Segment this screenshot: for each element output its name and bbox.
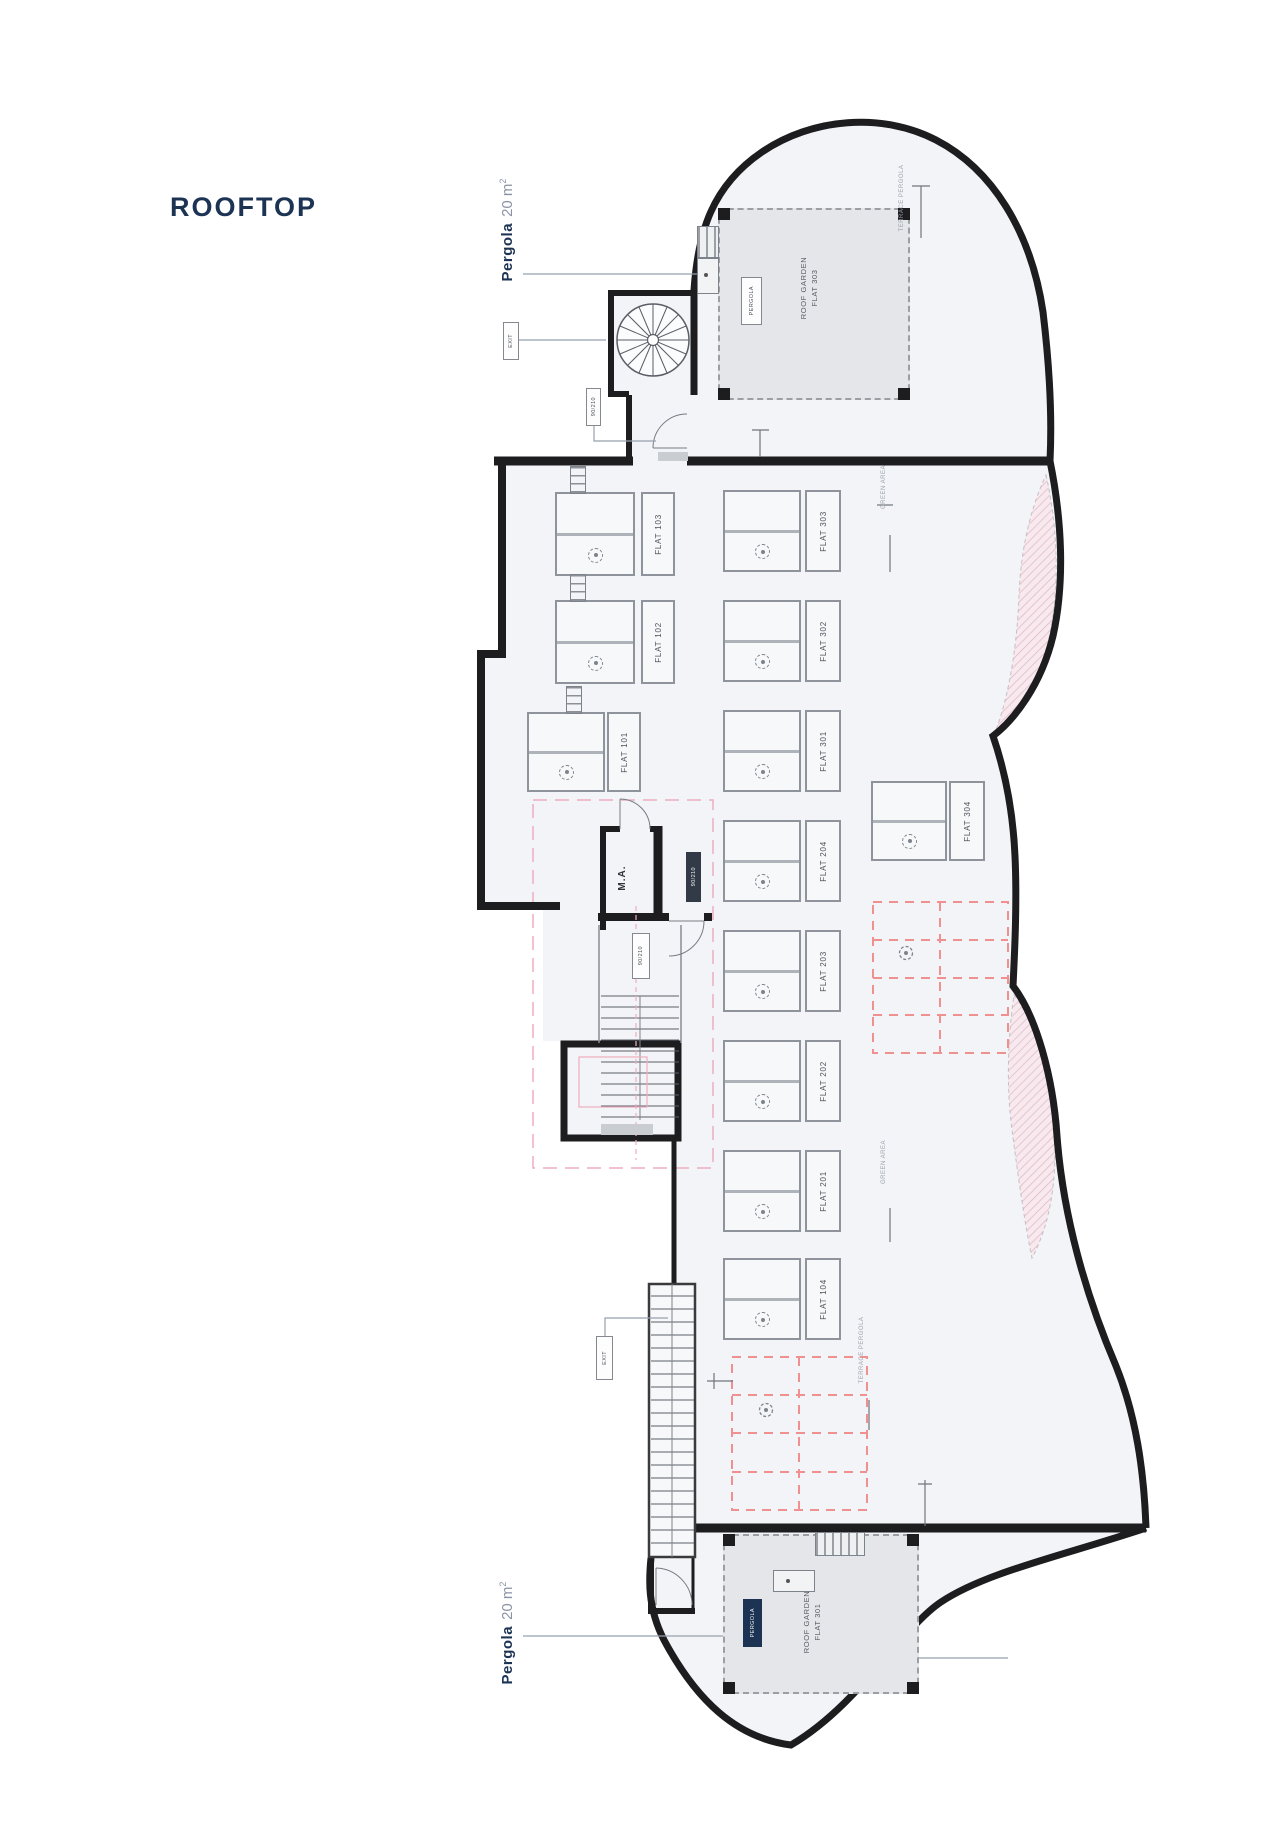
unit-label-flat-202: FLAT 202 — [805, 1040, 841, 1122]
vent-grille-bottom — [815, 1532, 865, 1556]
page-title: ROOFTOP — [170, 192, 317, 223]
unit-label-flat-203: FLAT 203 — [805, 930, 841, 1012]
vent-grille-icon — [570, 574, 586, 602]
unit-label-flat-201: FLAT 201 — [805, 1150, 841, 1232]
unit-label-flat-102: FLAT 102 — [641, 600, 675, 684]
unit-platform-flat-304 — [871, 781, 947, 861]
unit-label-flat-301: FLAT 301 — [805, 710, 841, 792]
unit-platform-flat-202 — [723, 1040, 801, 1122]
unit-label-flat-302: FLAT 302 — [805, 600, 841, 682]
fan-icon — [559, 765, 574, 780]
pergola-callout-bottom: Pergola20 m2 — [496, 1573, 518, 1693]
vent-grille-top — [697, 226, 719, 258]
door-tag-machine-room: 90/210 — [686, 852, 701, 902]
pergola-bottom-label: Pergola — [499, 1626, 516, 1685]
fan-icon — [755, 1204, 770, 1219]
unit-label-flat-104: FLAT 104 — [805, 1258, 841, 1340]
plan-linework — [0, 0, 1280, 1830]
exit-tag-south-stair: EXIT — [596, 1336, 613, 1380]
fan-icon — [755, 1312, 770, 1327]
unit-platform-flat-201 — [723, 1150, 801, 1232]
unit-label-flat-101: FLAT 101 — [607, 712, 641, 792]
pergola-tag-top: PERGOLA — [741, 277, 762, 325]
unit-platform-flat-303 — [723, 490, 801, 572]
unit-label-flat-204: FLAT 204 — [805, 820, 841, 902]
south-stair — [649, 1284, 695, 1605]
fan-icon — [588, 656, 603, 671]
unit-platform-flat-103 — [555, 492, 635, 576]
machine-room-label: M.A. — [610, 848, 634, 908]
edge-note-se-bottom: TERRACE PERGOLA — [856, 1298, 868, 1402]
pergola-bottom-area: 20 m — [499, 1587, 516, 1620]
unit-label-flat-304: FLAT 304 — [949, 781, 985, 861]
pergola-callout-top: Pergola20 m2 — [496, 170, 518, 290]
fan-icon — [755, 874, 770, 889]
unit-platform-flat-203 — [723, 930, 801, 1012]
unit-platform-flat-301 — [723, 710, 801, 792]
pergola-tag-bottom: PERGOLA — [743, 1599, 762, 1647]
roof-garden-top-label: ROOF GARDEN FLAT 303 — [791, 238, 827, 338]
pergola-top-label: Pergola — [499, 223, 516, 282]
edge-note-ne-top: TERRACE PERGOLA — [896, 146, 908, 250]
unit-platform-flat-102 — [555, 600, 635, 684]
fan-icon — [902, 834, 917, 849]
floor-plan-canvas: ROOFTOP Pergola20 m2 Pergola20 m2 ROOF G… — [0, 0, 1280, 1830]
edge-note-ne-mid: GREEN AREA — [878, 435, 890, 539]
fan-icon — [755, 544, 770, 559]
fan-icon — [588, 548, 603, 563]
unit-platform-flat-302 — [723, 600, 801, 682]
door-tag-core: 90/210 — [632, 933, 650, 979]
entry-sill — [658, 452, 688, 461]
unit-label-flat-103: FLAT 103 — [641, 492, 675, 576]
fan-icon — [755, 1094, 770, 1109]
fan-icon — [755, 764, 770, 779]
utility-box-top — [697, 258, 719, 294]
fan-icon — [755, 654, 770, 669]
pergola-top-area: 20 m — [499, 184, 516, 217]
unit-platform-flat-204 — [723, 820, 801, 902]
vent-grille-icon — [566, 686, 582, 714]
edge-note-se-mid: GREEN AREA — [878, 1110, 890, 1214]
spiral-stair — [617, 304, 689, 376]
door-tag-entry: 90/210 — [586, 388, 601, 426]
utility-box-bottom — [773, 1570, 815, 1592]
fan-icon — [755, 984, 770, 999]
exit-tag-spiral: EXIT — [503, 322, 519, 360]
vent-grille-icon — [570, 466, 586, 494]
unit-label-flat-303: FLAT 303 — [805, 490, 841, 572]
unit-platform-flat-101 — [527, 712, 605, 792]
unit-platform-flat-104 — [723, 1258, 801, 1340]
